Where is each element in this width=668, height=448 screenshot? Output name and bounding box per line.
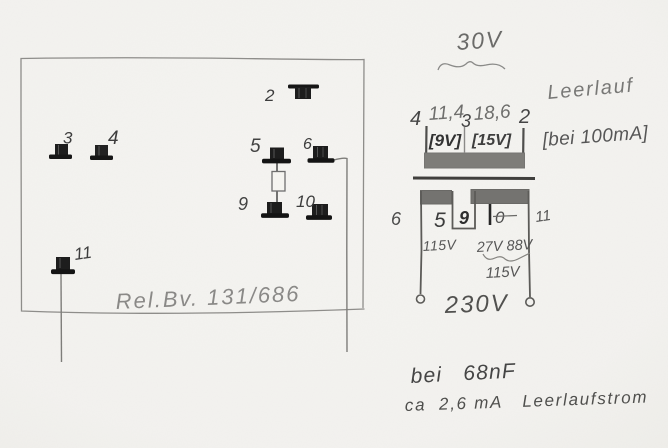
svg-text:4: 4	[108, 128, 119, 149]
svg-text:6: 6	[391, 209, 402, 229]
svg-text:30V: 30V	[456, 26, 505, 55]
svg-text:[9V]: [9V]	[428, 131, 462, 150]
svg-text:0: 0	[495, 208, 505, 227]
svg-text:3: 3	[63, 129, 73, 148]
svg-text:5: 5	[434, 209, 446, 232]
svg-text:27V 88V: 27V 88V	[475, 237, 534, 256]
svg-text:[15V]: [15V]	[471, 132, 512, 149]
svg-text:9: 9	[459, 208, 469, 228]
svg-text:230V: 230V	[443, 290, 509, 319]
svg-text:6: 6	[303, 136, 312, 153]
svg-text:11,4: 11,4	[428, 102, 465, 125]
svg-text:18,6: 18,6	[473, 101, 512, 125]
svg-text:9: 9	[238, 194, 248, 214]
svg-text:5: 5	[250, 136, 261, 157]
svg-text:11: 11	[73, 243, 93, 264]
svg-text:4: 4	[410, 108, 421, 130]
svg-text:3: 3	[461, 111, 471, 131]
svg-text:2: 2	[518, 106, 530, 128]
svg-text:11: 11	[534, 207, 552, 226]
svg-text:10: 10	[296, 192, 315, 211]
svg-text:115V: 115V	[422, 236, 458, 254]
svg-text:115V: 115V	[485, 263, 522, 282]
svg-text:2: 2	[264, 86, 275, 105]
